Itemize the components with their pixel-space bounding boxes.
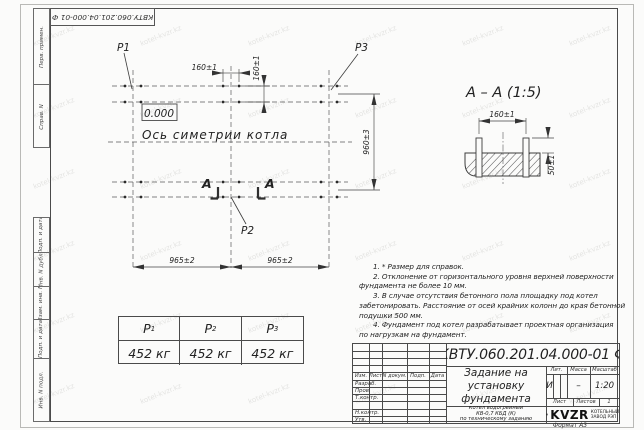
plan-axes [108, 66, 352, 268]
loads-value-p1: 452 кг [119, 341, 180, 365]
dim-section-height: 50±1 [547, 155, 556, 176]
symmetry-axis-label: Ось симетрии котла [142, 128, 288, 142]
loads-value-p2: 452 кг [180, 341, 241, 365]
dim-bolt-vertical: 160±1 [252, 55, 261, 80]
scale-value: 1:20 [590, 374, 619, 398]
title-block: Изм. Лист N докум. Подп. Дата Разраб. Пр… [352, 343, 620, 424]
note-line: 1. * Размер для справок. [359, 262, 627, 272]
note-line: 2. Отклонение от горизонтального уровня … [359, 272, 627, 282]
tb-col-ndokum: N докум. [382, 372, 407, 380]
tb-row-utv: Утв. [353, 416, 384, 423]
loads-table: Р1 Р2 Р3 452 кг 452 кг 452 кг [118, 316, 304, 364]
dim-depth: 960±3 [362, 129, 371, 155]
note-line: 4. Фундамент под котел разрабатывает про… [359, 320, 627, 330]
tb-row-tkontr: Т.контр. [353, 394, 384, 401]
company-logo-text: KVZR [550, 408, 589, 422]
drawing-title: Задание на установку фундамента [446, 366, 546, 406]
note-line: по нагрузкам на фундамент. [359, 330, 627, 340]
lit-label: Лит. [546, 366, 567, 374]
tb-row-razrab: Разраб. [353, 380, 384, 387]
loads-header-p1: Р1 [119, 317, 180, 341]
anchor-bolt-left [476, 138, 482, 177]
tb-row-nkontr: Н.контр. [353, 409, 384, 416]
dim-span-right: 965±2 [267, 256, 293, 265]
tb-col-data: Дата [429, 372, 446, 380]
dimension-lines [133, 69, 380, 267]
doc-number: КВТУ.060.201.04.000-01 Ф [446, 344, 619, 366]
point-label-p3: Р3 [355, 42, 368, 54]
sheets-value: 1 [599, 398, 619, 406]
point-label-p1: Р1 [117, 42, 130, 54]
note-line: забетонировать. Расстояние от осей крайн… [359, 301, 627, 311]
note-line: подушки 500 мм. [359, 311, 627, 321]
point-label-p2: Р2 [241, 225, 254, 237]
lit-value: И [546, 374, 553, 398]
sheets-label: Листов [573, 398, 599, 406]
section-view-title: А – А (1:5) [465, 85, 542, 101]
anchor-bolt-right [523, 138, 529, 177]
section-letter-left: А [201, 176, 212, 191]
dim-bolt-horizontal: 160±1 [192, 63, 217, 72]
loads-header-p3: Р3 [242, 317, 303, 341]
company-name: КОТЕЛЬНЫЙ ЗАВОД РЭП [591, 410, 619, 420]
tb-col-podp: Подп. [407, 372, 429, 380]
section-letter-right: А [264, 176, 275, 191]
drawing-sheet: kotel-kvzr.kzkotel-kvzr.kzkotel-kvzr.kzk… [0, 0, 644, 430]
note-line: фундамента не более 10 мм. [359, 281, 627, 291]
tb-row-prov: Пров. [353, 387, 384, 394]
tb-col-list: Лист [369, 372, 382, 380]
loads-header-p2: Р2 [180, 317, 241, 341]
mass-label: Масса [567, 366, 590, 374]
dim-section-bolt: 160±1 [489, 110, 514, 119]
note-line: 3. В случае отсутствия бетонного пола пл… [359, 291, 627, 301]
loads-value-p3: 452 кг [242, 341, 303, 365]
sheet-label: Лист [546, 398, 573, 406]
kvzr-logo-icon [546, 408, 548, 421]
tb-col-izm: Изм. [353, 372, 369, 380]
drawing-subtitle: Котел водогрейный КВ-0,7 КБД (К) по техн… [446, 406, 546, 423]
elevation-value: 0.000 [144, 108, 174, 120]
technical-notes: 1. * Размер для справок. 2. Отклонение о… [359, 262, 627, 340]
format-label: Формат А3 [540, 422, 600, 429]
mass-value: – [567, 374, 590, 398]
scale-label: Масштаб [590, 366, 619, 374]
dim-span-left: 965±2 [169, 256, 195, 265]
company-cell: KVZR КОТЕЛЬНЫЙ ЗАВОД РЭП [546, 406, 619, 423]
